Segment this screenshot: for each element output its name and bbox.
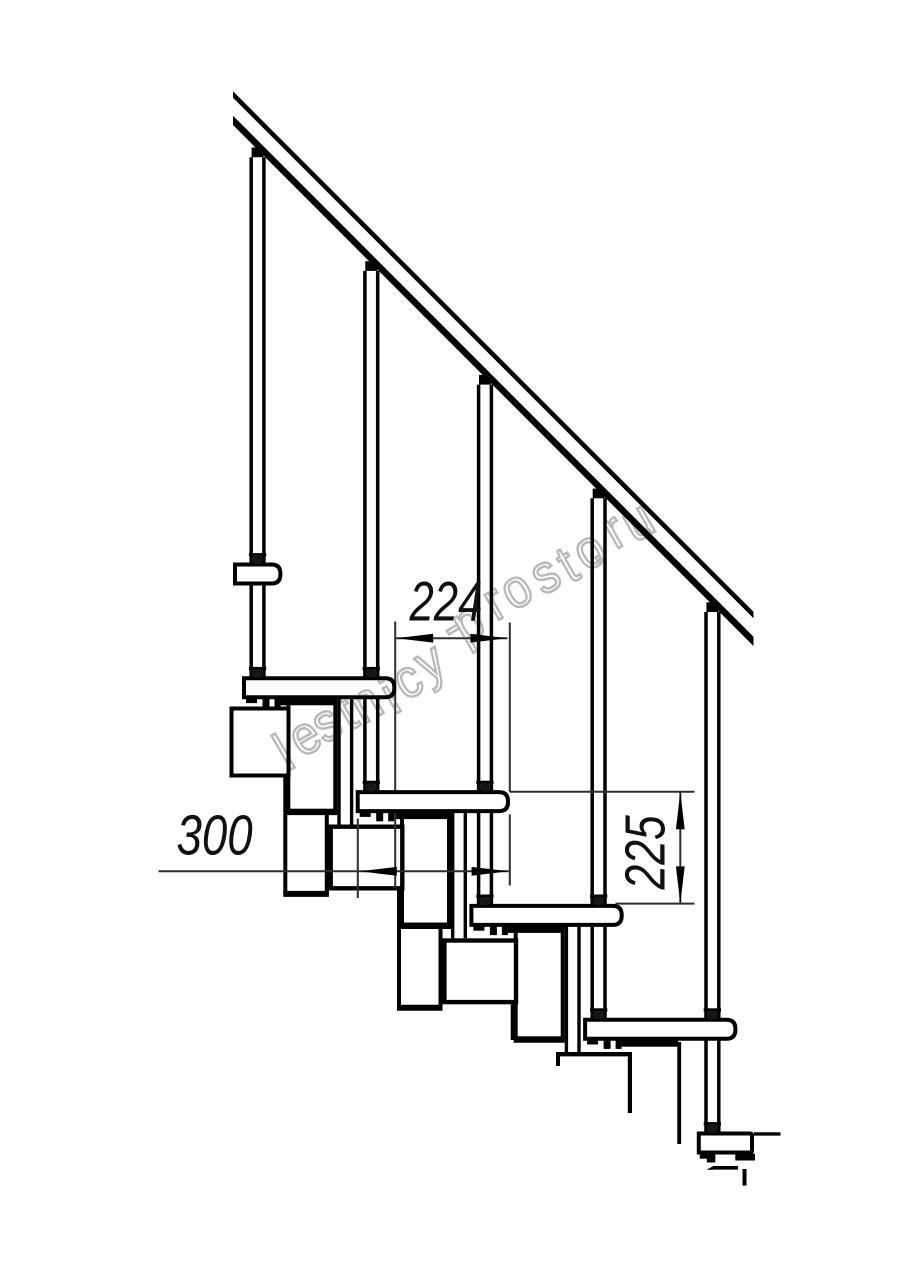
svg-text:300: 300 [177,803,253,867]
svg-text:225: 225 [613,815,677,891]
